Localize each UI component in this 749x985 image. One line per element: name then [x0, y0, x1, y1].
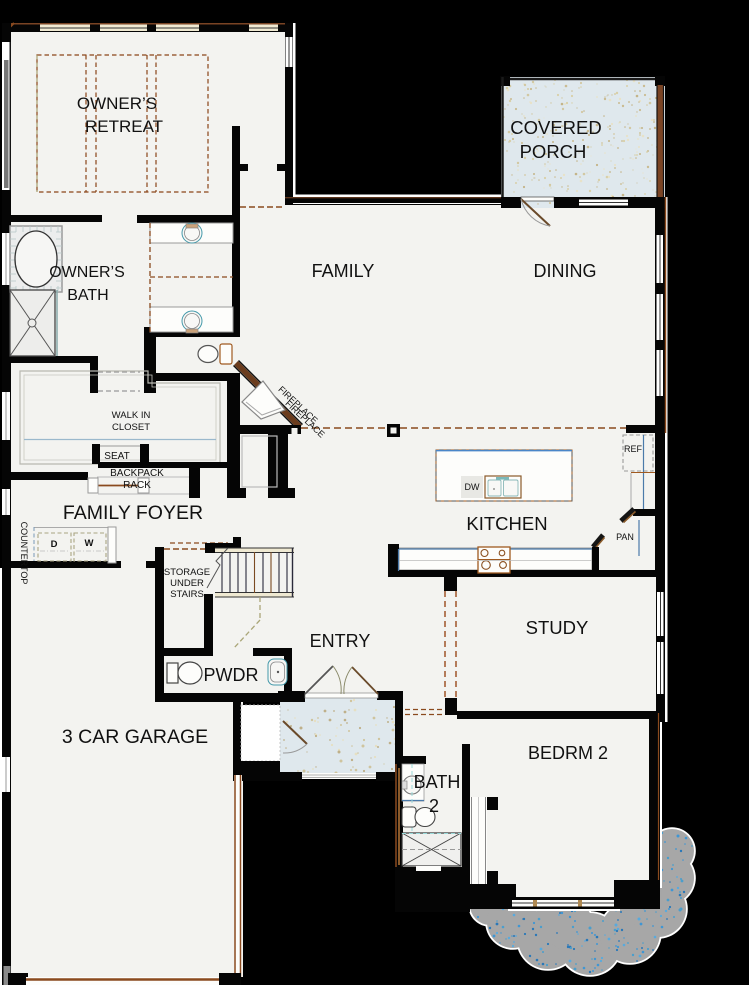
svg-text:BACKPACK: BACKPACK — [110, 468, 164, 479]
svg-text:COVERED: COVERED — [510, 117, 602, 138]
svg-text:BATH: BATH — [414, 772, 461, 792]
svg-text:DINING: DINING — [534, 261, 597, 281]
svg-text:WALK IN: WALK IN — [112, 410, 151, 421]
svg-text:2: 2 — [429, 796, 439, 816]
svg-text:SEAT: SEAT — [104, 451, 129, 462]
svg-text:BATH: BATH — [67, 287, 108, 304]
svg-text:FAMILY FOYER: FAMILY FOYER — [63, 502, 203, 524]
svg-text:OWNER’S: OWNER’S — [49, 264, 125, 281]
svg-text:STUDY: STUDY — [526, 617, 589, 638]
svg-text:UNDER: UNDER — [170, 578, 204, 589]
svg-text:FAMILY: FAMILY — [312, 261, 375, 281]
svg-text:BEDRM 2: BEDRM 2 — [528, 743, 608, 763]
svg-text:D: D — [51, 539, 58, 550]
svg-text:COUNTERTOP: COUNTERTOP — [19, 522, 29, 585]
svg-text:PAN: PAN — [616, 532, 634, 542]
svg-text:OWNER’S: OWNER’S — [77, 94, 157, 113]
svg-text:PWDR: PWDR — [204, 665, 259, 685]
svg-text:STORAGE: STORAGE — [164, 567, 210, 578]
svg-text:RETREAT: RETREAT — [85, 117, 163, 136]
svg-text:PORCH: PORCH — [520, 141, 587, 162]
svg-text:3 CAR GARAGE: 3 CAR GARAGE — [62, 726, 208, 748]
svg-text:ENTRY: ENTRY — [310, 631, 371, 651]
svg-text:STAIRS: STAIRS — [170, 589, 204, 600]
svg-text:RACK: RACK — [123, 480, 151, 491]
svg-text:DW: DW — [465, 482, 480, 492]
svg-text:KITCHEN: KITCHEN — [466, 513, 547, 534]
svg-text:REF: REF — [624, 444, 643, 454]
svg-text:W: W — [85, 538, 94, 549]
svg-text:CLOSET: CLOSET — [112, 422, 150, 433]
